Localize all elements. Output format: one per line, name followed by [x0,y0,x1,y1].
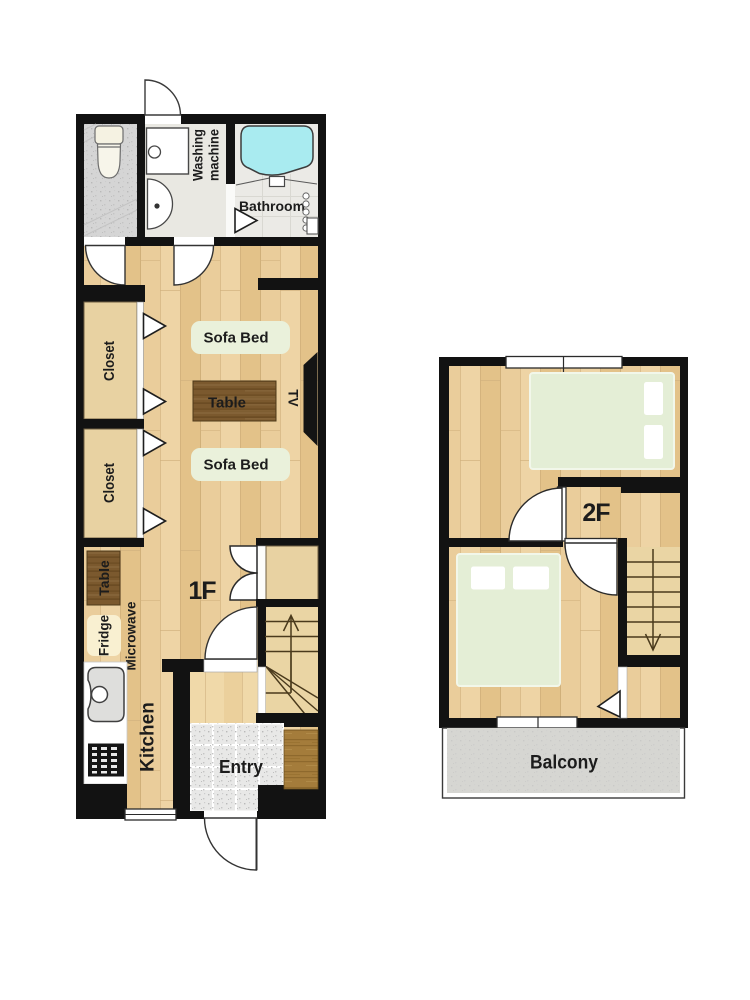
svg-text:Microwave: Microwave [124,601,139,671]
svg-text:Washing: Washing [191,129,206,181]
svg-text:Sofa Bed: Sofa Bed [203,330,268,347]
svg-text:Closet: Closet [102,341,118,381]
svg-text:Table: Table [208,395,246,412]
svg-text:Closet: Closet [102,463,118,503]
svg-text:Bathroom: Bathroom [239,198,305,214]
svg-text:machine: machine [207,129,222,181]
svg-text:Table: Table [96,560,112,596]
svg-text:2F: 2F [582,499,610,527]
svg-text:1F: 1F [188,577,216,605]
svg-text:Fridge: Fridge [97,614,112,656]
svg-text:Sofa Bed: Sofa Bed [203,457,268,474]
svg-text:Balcony: Balcony [530,753,598,774]
svg-text:Kitchen: Kitchen [138,702,159,772]
svg-text:TV: TV [286,389,301,406]
svg-text:Entry: Entry [219,757,263,777]
